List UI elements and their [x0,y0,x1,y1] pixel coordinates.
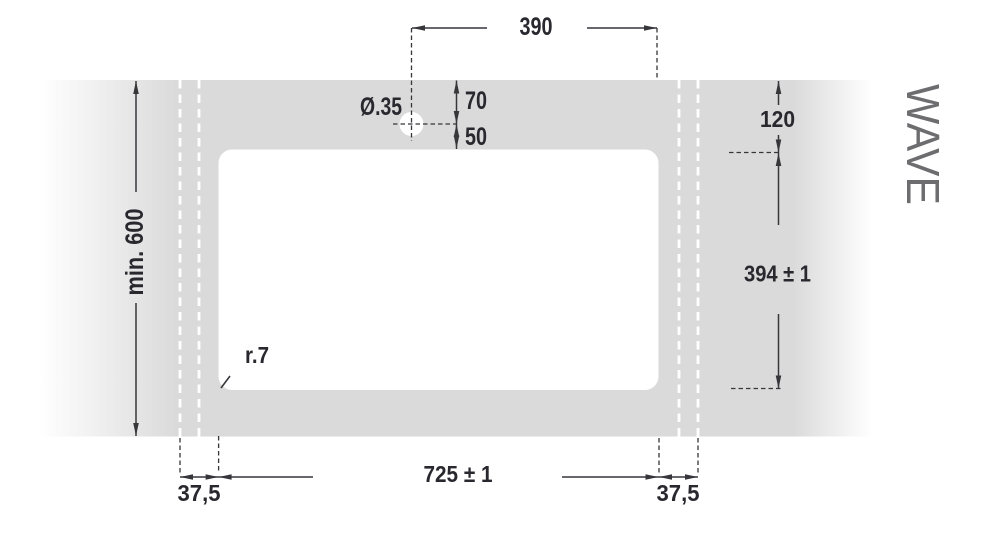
svg-text:Ø.35: Ø.35 [360,93,402,121]
svg-text:390: 390 [520,13,553,41]
svg-text:37,5: 37,5 [178,480,221,506]
svg-text:725 ± 1: 725 ± 1 [424,461,493,487]
svg-text:50: 50 [465,123,487,151]
svg-text:120: 120 [760,106,795,132]
svg-text:WAVE: WAVE [897,84,949,205]
svg-text:min. 600: min. 600 [121,209,149,296]
svg-text:394 ± 1: 394 ± 1 [744,261,811,287]
svg-text:37,5: 37,5 [657,480,700,506]
svg-text:r.7: r.7 [245,342,269,368]
svg-text:70: 70 [465,87,487,115]
